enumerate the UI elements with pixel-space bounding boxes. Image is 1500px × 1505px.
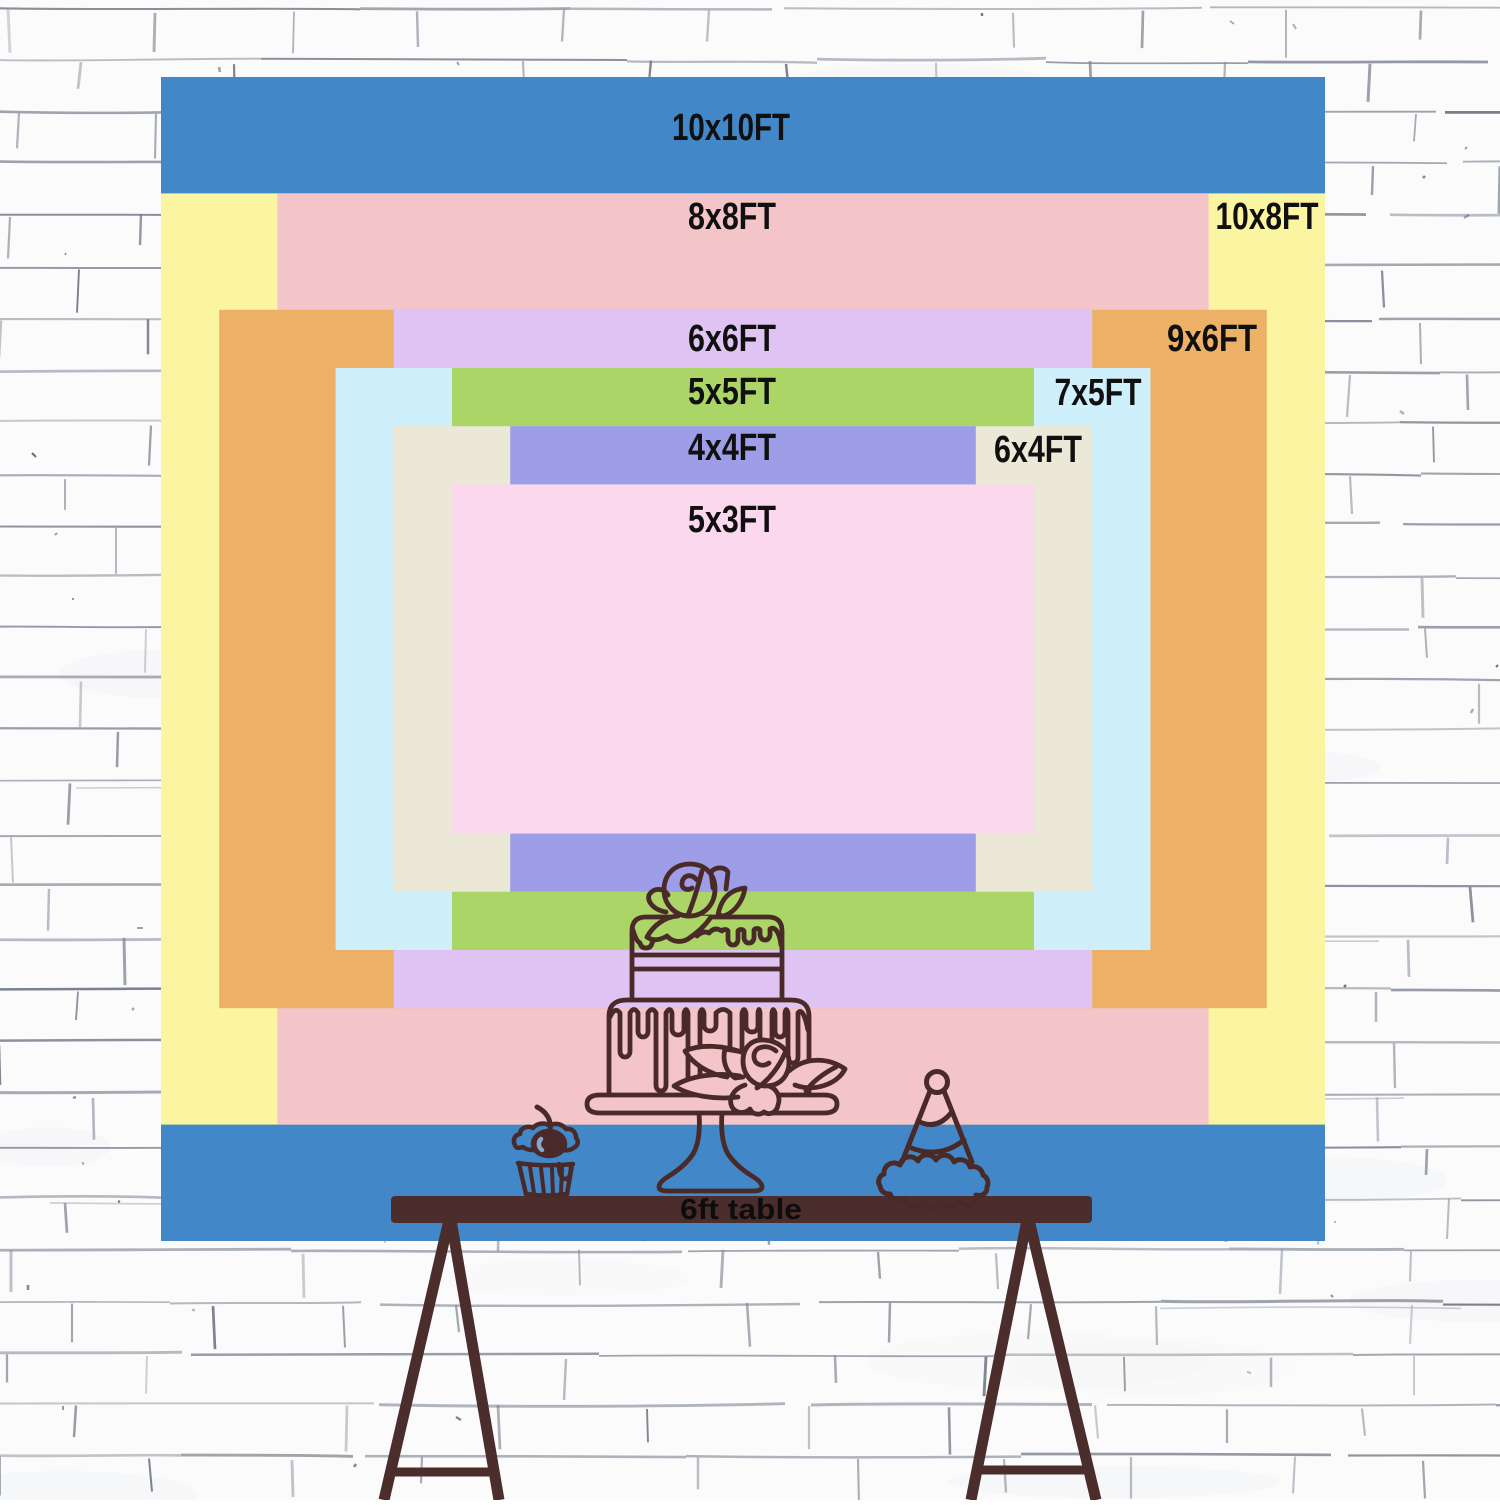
svg-text:7x5FT: 7x5FT xyxy=(1055,372,1142,414)
svg-text:4x4FT: 4x4FT xyxy=(688,427,776,469)
svg-text:8x8FT: 8x8FT xyxy=(688,196,776,238)
svg-text:5x3FT: 5x3FT xyxy=(688,499,776,541)
svg-text:5x5FT: 5x5FT xyxy=(688,371,776,413)
svg-text:10x8FT: 10x8FT xyxy=(1216,196,1319,238)
svg-text:10x10FT: 10x10FT xyxy=(672,107,790,149)
svg-text:6x6FT: 6x6FT xyxy=(688,318,776,360)
svg-text:9x6FT: 9x6FT xyxy=(1167,318,1257,360)
svg-text:6ft table: 6ft table xyxy=(680,1194,802,1226)
svg-text:6x4FT: 6x4FT xyxy=(994,429,1082,471)
